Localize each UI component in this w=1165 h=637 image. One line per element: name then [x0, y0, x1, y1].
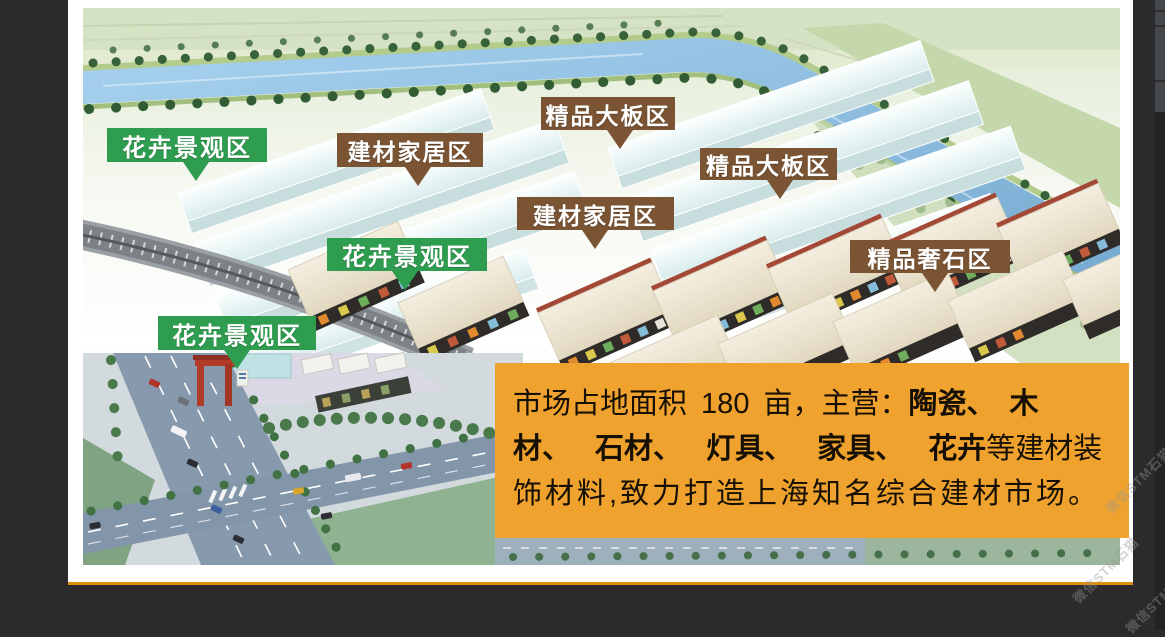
zone-label-luxury-stone: 精品奢石区: [850, 240, 1010, 273]
scrollbar[interactable]: [1155, 0, 1165, 630]
zone-label-flower-1: 花卉景观区: [107, 128, 267, 162]
zone-label-home-materials-1: 建材家居区: [337, 133, 483, 167]
info-line-3: 饰材料,致力打造上海知名综合建材市场。: [513, 472, 1111, 517]
info-line-2: 材、 石材、 灯具、 家具、 花卉等建材装: [513, 427, 1111, 472]
zone-label-home-materials-2: 建材家居区: [517, 197, 674, 230]
zone-label-text: 精品大板区: [706, 147, 831, 181]
zone-label-text: 精品奢石区: [868, 240, 993, 274]
scrollbar-separator: [1155, 10, 1165, 12]
zone-label-text: 花卉景观区: [342, 237, 472, 272]
zone-label-text: 建材家居区: [348, 133, 473, 167]
zone-label-flower-3: 花卉景观区: [158, 316, 316, 350]
scrollbar-separator: [1155, 80, 1165, 82]
zone-label-slab-1: 精品大板区: [541, 97, 675, 130]
zone-label-text: 花卉景观区: [122, 128, 252, 163]
info-text-bold: 陶瓷、 木: [909, 388, 1039, 420]
info-text: 饰材料,致力打造上海知名综合建材市场。: [513, 478, 1100, 510]
zone-label-text: 花卉景观区: [172, 316, 302, 351]
info-text-bold: 材、 石材、 灯具、 家具、 花卉: [513, 433, 986, 465]
info-text: 等建材装: [986, 433, 1102, 465]
zone-label-text: 精品大板区: [546, 97, 671, 131]
info-panel: 市场占地面积 180 亩，主营：陶瓷、 木 材、 石材、 灯具、 家具、 花卉等…: [495, 363, 1129, 538]
image-card: 花卉景观区 建材家居区 精品大板区 精品大板区 建材家居区 花卉景观区 花卉景观…: [68, 0, 1133, 585]
scrollbar-thumb[interactable]: [1155, 0, 1165, 112]
scrollbar-separator: [1155, 25, 1165, 27]
app-background: { "window": { "description_note": "aeria…: [0, 0, 1165, 630]
zone-label-flower-2: 花卉景观区: [327, 238, 487, 271]
info-text: 市场占地面积 180 亩，主营：: [513, 388, 909, 420]
zone-label-text: 建材家居区: [533, 197, 658, 231]
zone-label-slab-2: 精品大板区: [700, 148, 837, 180]
info-line-1: 市场占地面积 180 亩，主营：陶瓷、 木: [513, 382, 1111, 427]
